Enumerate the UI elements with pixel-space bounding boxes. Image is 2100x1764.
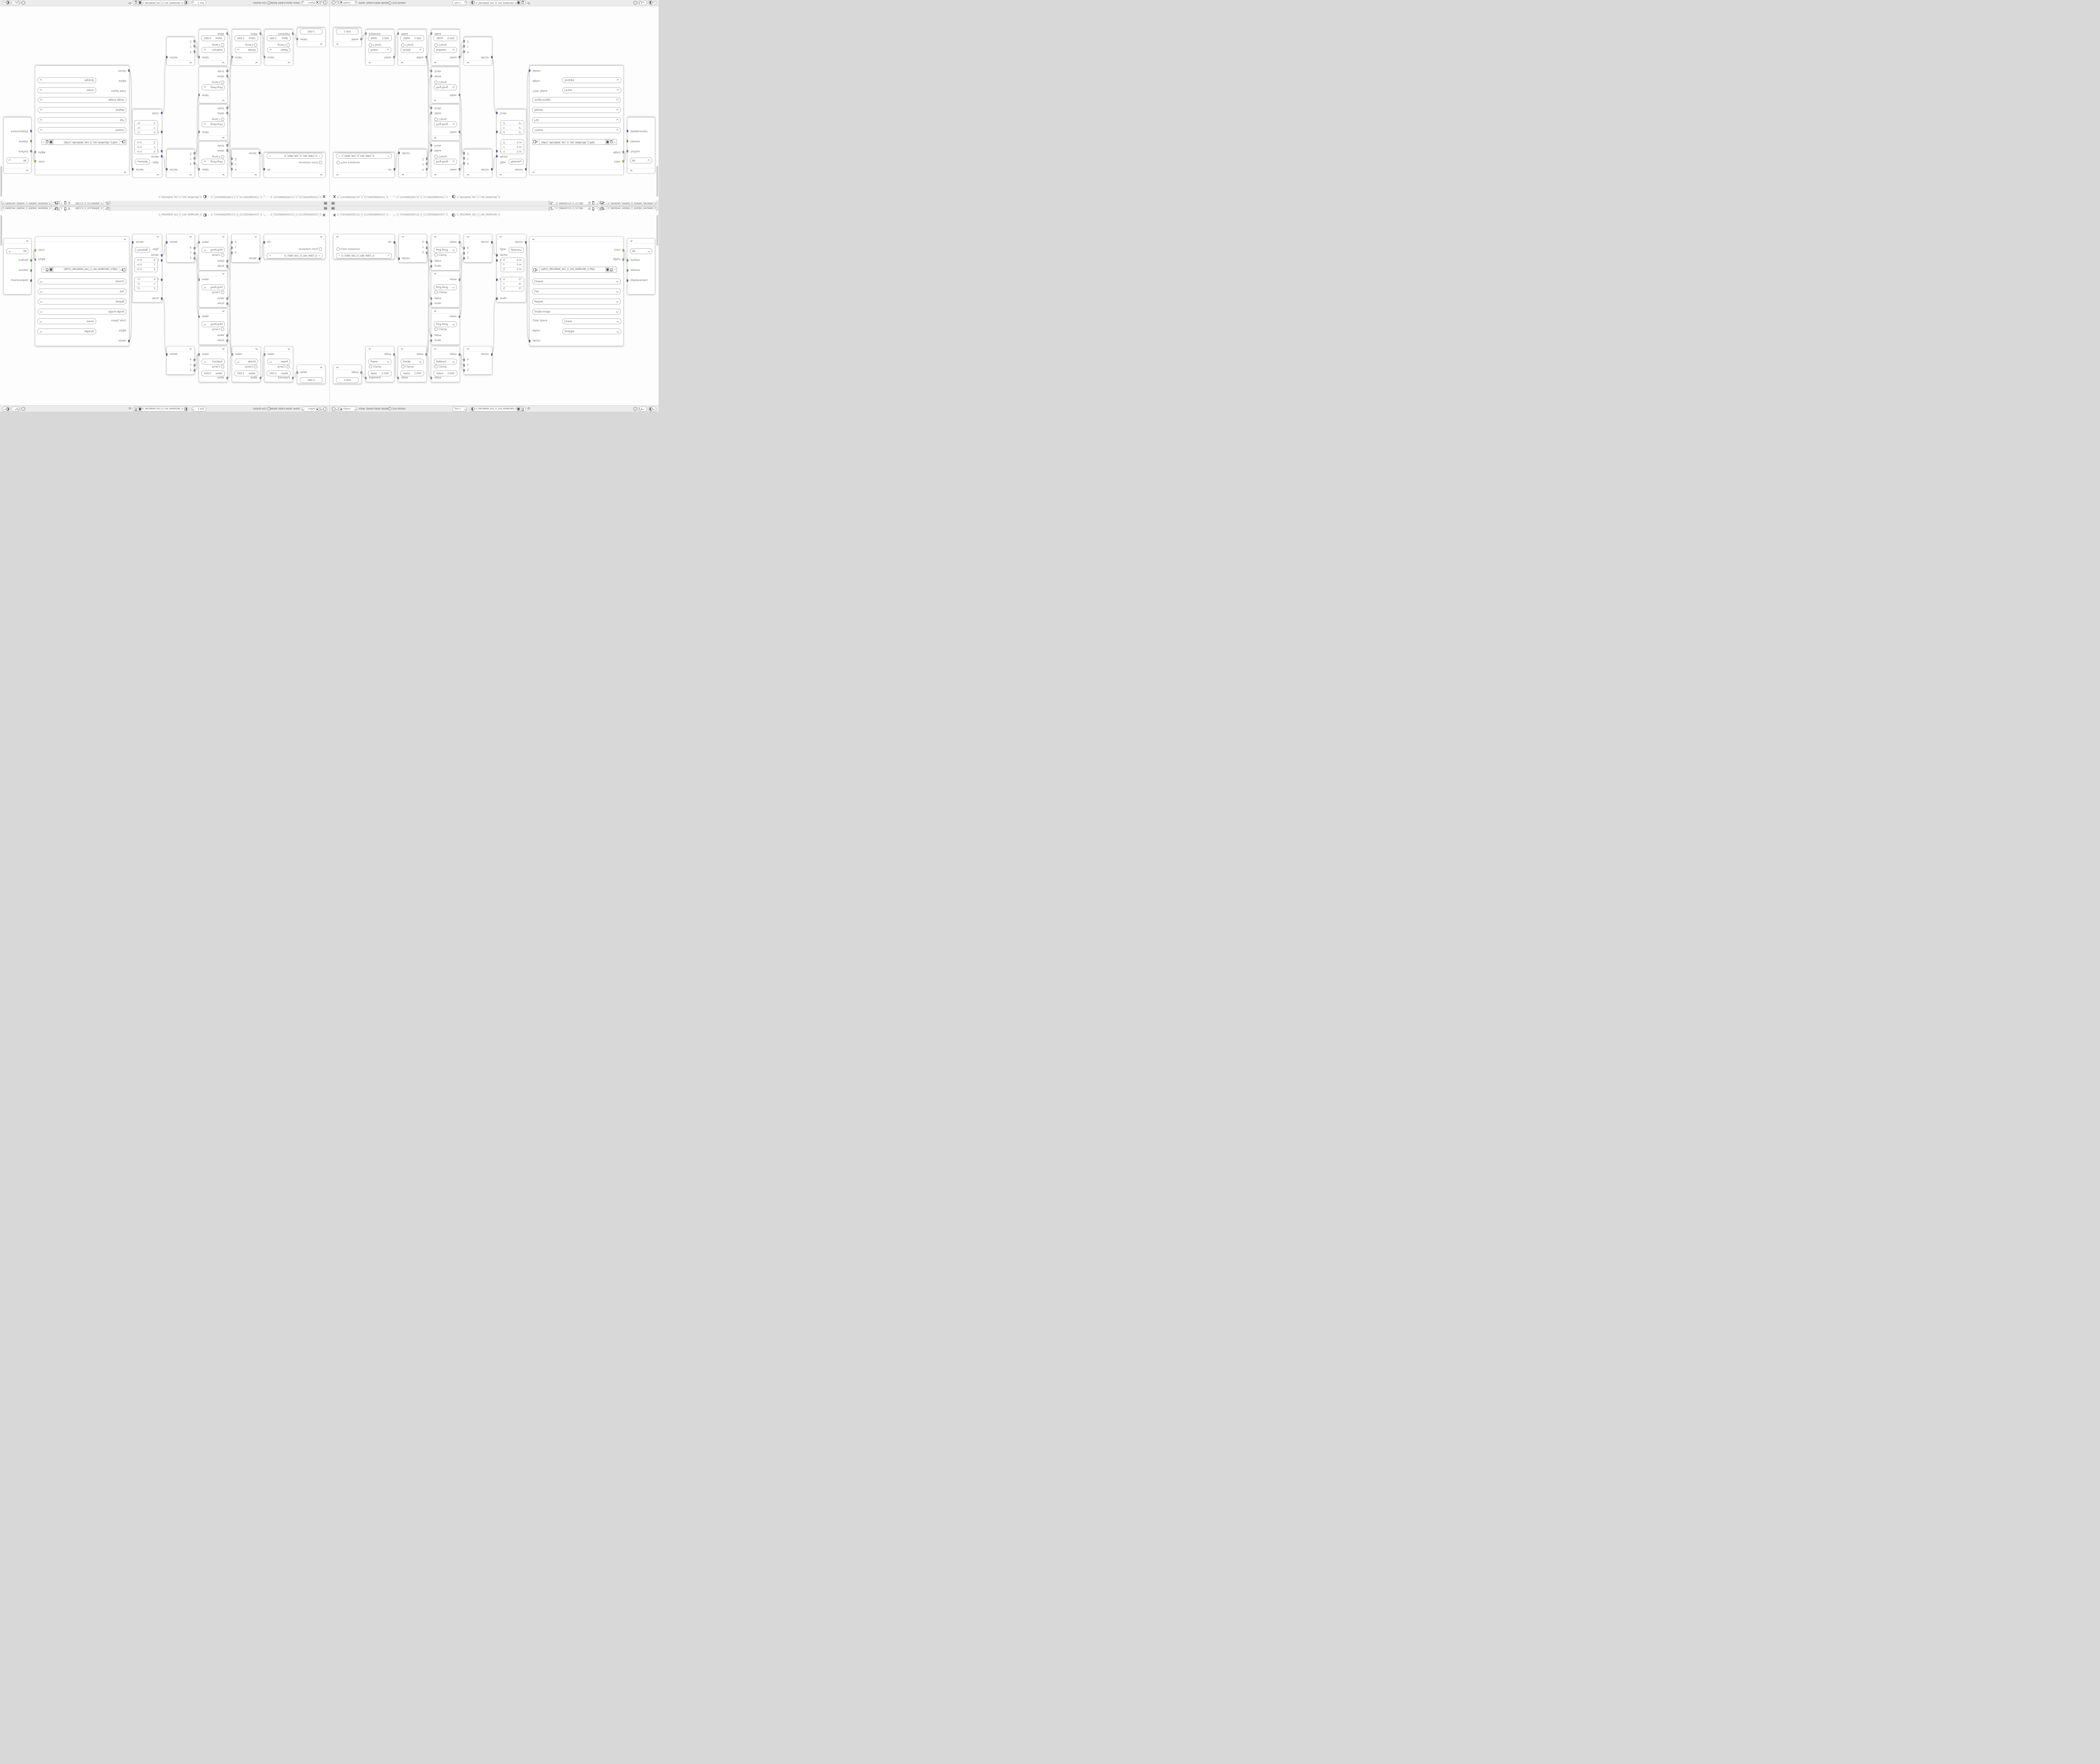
image-texture-node-header[interactable] <box>35 170 129 175</box>
node-editor-canvas[interactable]: O_TOHЅͶИƎƎЯƆƆЅ_O_ЅƆƆЯЯƎƎИͶЅHOT_O›O_TOHЅͶ… <box>0 211 329 406</box>
socket-math-ping-pong-2-out-value[interactable] <box>459 278 461 281</box>
close-icon[interactable]: ✕ <box>133 407 134 411</box>
socket-combine-xyz-1-in-x[interactable] <box>463 162 465 164</box>
material-output-all-dropdown[interactable]: All <box>6 248 29 254</box>
socket-math-power-out-value[interactable] <box>264 353 266 355</box>
image-texture-repeat-dropdown[interactable]: Repeat <box>38 299 126 304</box>
combine-xyz-2-node-header[interactable] <box>167 60 194 65</box>
math-ping-pong-1-node[interactable]: ValuePing-PongClampValueScale <box>199 234 228 270</box>
socket-mapping-in-rotation[interactable] <box>161 278 163 281</box>
image-texture-singleimage-dropdown[interactable]: Single Image <box>38 309 126 315</box>
math-divide-node-header[interactable] <box>398 346 426 352</box>
socket-mapping-in-vector[interactable] <box>161 155 163 157</box>
close-icon[interactable]: ✕ <box>613 267 617 272</box>
socket-math-ping-pong-2-in-value[interactable] <box>226 297 228 299</box>
proportional-editing-icon[interactable] <box>21 1 25 5</box>
math-subtract-value-slider[interactable]: Value0.000 <box>201 370 225 376</box>
math-subtract-subtract-dropdown[interactable]: Subtract <box>434 359 457 365</box>
socket-math-ping-pong-1-out-value[interactable] <box>198 241 200 243</box>
mapping-node-header[interactable] <box>497 172 526 177</box>
vector-field-y[interactable]: Y0 m <box>501 144 524 149</box>
material-output-node[interactable]: AllSurfaceVolumeDisplacement <box>627 117 655 173</box>
socket-uv-map-out-uv[interactable] <box>394 168 396 170</box>
socket-separate-xyz-out-y[interactable] <box>426 163 428 165</box>
image-name[interactable]: GИP.O_ЯROЯRIM_WU_O_UW_MIЯROЯR_O.PNG <box>540 139 605 144</box>
editor-type-selector[interactable] <box>331 407 339 412</box>
separate-xyz-node-header[interactable] <box>399 172 427 177</box>
socket-combine-xyz-2-in-x[interactable] <box>194 359 196 361</box>
view-layer-datablock[interactable]: O_ЯЯƎƎYAV_WƎƎIW_O_WIƎƎW_VAYƎƎЯЯ_O✕ <box>1 201 59 205</box>
close-icon[interactable]: ✕ <box>595 207 599 211</box>
copy-icon[interactable] <box>63 201 67 205</box>
close-icon[interactable]: ✕ <box>388 255 389 257</box>
math-subtract-node[interactable]: ValueSubtractClampValue0.000Value <box>199 29 228 66</box>
socket-separate-xyz-in-vector[interactable] <box>259 152 261 154</box>
material-output-node-header[interactable] <box>4 239 31 244</box>
pin-icon[interactable] <box>526 407 530 410</box>
socket-math-divide-out-value[interactable] <box>231 353 234 355</box>
mapping-vector-fields[interactable]: X0 mY0 mZ0 m <box>134 139 158 154</box>
value-1000-dropdown[interactable]: 1.000 <box>336 29 359 34</box>
view-layer-datablock-name[interactable]: O_ЯЯƎƎYAV_WƎƎIW_O_WIƎƎW_VAYƎƎЯЯ_O <box>607 207 657 211</box>
material-output-all-dropdown[interactable]: All <box>630 248 652 254</box>
socket-combine-xyz-2-in-y[interactable] <box>194 45 196 47</box>
uv-map-uvmap-field[interactable]: •O_ПAM_WU_O_UW_MAП_O✕ <box>267 153 323 159</box>
copy-icon[interactable] <box>521 0 525 5</box>
socket-image-texture-out-color[interactable] <box>34 249 37 251</box>
image-texture-node-header[interactable] <box>35 237 129 242</box>
socket-math-ping-pong-3-in-scale[interactable] <box>430 339 433 341</box>
image-texture-straight-dropdown[interactable]: Straight <box>562 77 621 83</box>
combine-xyz-1-node[interactable]: VectorXYZ <box>166 234 195 262</box>
math-power-node-header[interactable] <box>366 60 394 65</box>
copy-icon[interactable] <box>46 267 50 272</box>
material-output-node[interactable]: AllSurfaceVolumeDisplacement <box>3 117 31 173</box>
mapping-vector-fields[interactable]: X0 mY0 mZ0 m <box>501 257 524 272</box>
view-layer-datablock-name[interactable]: O_ЯЯƎƎYAV_WƎƎIW_O_WIƎƎW_VAYƎƎЯЯ_O <box>607 201 657 205</box>
socket-math-ping-pong-2-out-value[interactable] <box>459 131 461 133</box>
image-name[interactable]: GИP.O_ЯROЯRIM_WU_O_UW_MIЯROЯR_O.PNG <box>53 139 119 144</box>
material-name[interactable]: O_ЯROЯRIM_WU_O_UW_MIЯROЯR_O <box>142 1 183 4</box>
socket-math-ping-pong-2-out-value[interactable] <box>198 131 200 133</box>
math-ping-pong-1-clamp-checkbox[interactable]: Clamp <box>434 253 447 257</box>
socket-combine-xyz-2-in-y[interactable] <box>463 45 465 47</box>
menu-view[interactable]: View <box>359 407 365 410</box>
slot-selector[interactable]: Slot 1 <box>452 407 467 412</box>
socket-separate-xyz-in-vector[interactable] <box>398 257 400 260</box>
mapping-texture-dropdown[interactable]: Texture <box>135 247 150 253</box>
socket-material-output-in-volume[interactable] <box>30 140 32 142</box>
image-name[interactable]: GИP.O_ЯROЯRIM_WU_O_UW_MIЯROЯR_O.PNG <box>540 267 605 272</box>
breadcrumb-item[interactable]: O_TOHЅͶИƎƎЯƆƆЅ_O_ЅƆƆЯЯƎƎИͶЅHOT_O <box>337 195 388 198</box>
socket-material-output-in-displacement[interactable] <box>30 279 32 281</box>
image-texture-closest-dropdown[interactable]: Closest <box>38 278 126 284</box>
view-layer-datablock-name[interactable]: O_ЯЯƎƎYAV_WƎƎIW_O_WIƎƎW_VAYƎƎЯЯ_O <box>2 207 52 211</box>
math-ping-pong-1-clamp-checkbox[interactable]: Clamp <box>212 253 224 257</box>
math-ping-pong-1-node-header[interactable] <box>431 234 459 239</box>
combine-xyz-2-node[interactable]: VectorXYZ <box>166 37 195 66</box>
math-power-clamp-checkbox[interactable]: Clamp <box>369 365 381 368</box>
close-icon[interactable]: ✕ <box>269 155 271 157</box>
vector-field-z[interactable]: Z0° <box>135 121 157 125</box>
snap-controls[interactable] <box>638 0 647 5</box>
menu-view[interactable]: View <box>294 407 300 410</box>
math-ping-pong-1-node[interactable]: ValuePing-PongClampValueScale <box>431 234 460 270</box>
node-editor-canvas[interactable]: O_TOHЅͶИƎƎЯƆƆЅ_O_ЅƆƆЯЯƎƎИͶЅHOT_O›O_TOHЅͶ… <box>329 211 659 406</box>
vertical-scrollbar[interactable] <box>1 166 3 197</box>
snap-controls[interactable] <box>11 0 21 5</box>
socket-math-divide-out-value[interactable] <box>425 353 428 355</box>
material-output-node[interactable]: AllSurfaceVolumeDisplacement <box>627 238 655 294</box>
math-ping-pong-3-node[interactable]: ValuePing-PongClampValueScale <box>199 67 228 103</box>
math-power-base-slider[interactable]: Base2.000 <box>267 35 291 41</box>
math-divide-node[interactable]: ValueDivideClampValue1.000Value <box>398 29 427 66</box>
mapping-vector-fields[interactable]: X0°Y0°Z0° <box>134 120 158 135</box>
math-ping-pong-3-pingpong-dropdown[interactable]: Ping-Pong <box>434 321 457 327</box>
value-node-header[interactable] <box>333 42 361 47</box>
slot-selector[interactable]: Slot 1 <box>452 0 467 5</box>
uv-map-uvmap-field[interactable]: •O_ПAM_WU_O_UW_MAП_O✕ <box>336 153 392 159</box>
pin-icon[interactable] <box>587 201 591 205</box>
view-layer-datablock[interactable]: O_ЯЯƎƎYAV_WƎƎIW_O_WIƎƎW_VAYƎƎЯЯ_O✕ <box>600 201 657 205</box>
vector-field-x[interactable]: X0 m <box>501 258 524 262</box>
socket-math-ping-pong-1-in-scale[interactable] <box>430 144 433 146</box>
math-divide-divide-dropdown[interactable]: Divide <box>401 47 424 53</box>
math-power-power-dropdown[interactable]: Power <box>368 359 391 365</box>
vertical-scrollbar[interactable] <box>656 215 658 246</box>
socket-math-subtract-out-value[interactable] <box>198 56 200 58</box>
mapping-node[interactable]: VectorType:TextureVectorLocation:X0 mY0 … <box>132 109 162 178</box>
image-texture-node[interactable]: ColorAlphaGИP.O_ЯROЯRIM_WU_O_UW_MIЯROЯR_… <box>529 236 624 346</box>
math-ping-pong-2-clamp-checkbox[interactable]: Clamp <box>212 291 224 294</box>
socket-combine-xyz-1-in-x[interactable] <box>194 162 196 164</box>
math-subtract-clamp-checkbox[interactable]: Clamp <box>212 365 224 368</box>
math-ping-pong-3-node-header[interactable] <box>431 98 459 103</box>
menu-add[interactable]: Add <box>375 1 380 5</box>
overlay-controls[interactable] <box>648 407 656 412</box>
socket-math-divide-out-value[interactable] <box>425 56 428 58</box>
socket-mapping-out-vector[interactable] <box>525 241 527 243</box>
pin-icon[interactable] <box>587 207 591 211</box>
math-ping-pong-3-clamp-checkbox[interactable]: Clamp <box>212 81 224 84</box>
math-ping-pong-2-node-header[interactable] <box>431 135 459 140</box>
image-texture-image-datablock[interactable]: GИP.O_ЯROЯRIM_WU_O_UW_MIЯROЯR_O.PNG✓✕ <box>42 139 126 145</box>
socket-mapping-in-scale[interactable] <box>161 112 163 114</box>
copy-icon[interactable] <box>134 407 138 411</box>
vector-field-y[interactable]: Y0 m <box>135 144 157 149</box>
math-ping-pong-1-clamp-checkbox[interactable]: Clamp <box>212 155 224 158</box>
math-power-node-header[interactable] <box>366 346 394 352</box>
value-node-header[interactable] <box>297 365 325 370</box>
socket-math-ping-pong-1-in-value[interactable] <box>430 149 433 151</box>
material-output-node-header[interactable] <box>4 168 31 173</box>
fake-user-shield-icon[interactable]: ✓ <box>138 0 142 5</box>
combine-xyz-1-node[interactable]: VectorXYZ <box>166 149 195 178</box>
socket-material-output-in-surface[interactable] <box>30 259 32 261</box>
socket-combine-xyz-1-in-x[interactable] <box>463 247 465 249</box>
breadcrumb-item[interactable]: O_ЯROЯRIM_WU_O_UW_MIЯROЯR_O <box>457 195 500 198</box>
math-ping-pong-1-pingpong-dropdown[interactable]: Ping-Pong <box>202 159 225 165</box>
socket-separate-xyz-out-y[interactable] <box>231 163 233 165</box>
math-ping-pong-3-node-header[interactable] <box>431 309 459 314</box>
socket-combine-xyz-2-in-y[interactable] <box>463 364 465 366</box>
copy-icon[interactable] <box>521 407 525 411</box>
math-ping-pong-2-node[interactable]: ValuePing-PongClampValueScale <box>199 271 228 307</box>
socket-math-ping-pong-2-in-value[interactable] <box>430 112 433 114</box>
socket-material-output-in-volume[interactable] <box>627 269 629 271</box>
math-ping-pong-1-pingpong-dropdown[interactable]: Ping-Pong <box>434 159 457 165</box>
socket-combine-xyz-1-in-y[interactable] <box>463 157 465 159</box>
uv-map-node[interactable]: UVFrom Instancer•O_ПAM_WU_O_UW_MAП_O✕ <box>264 234 325 259</box>
math-power-power-dropdown[interactable]: Power <box>267 359 290 365</box>
image-texture-singleimage-dropdown[interactable]: Single Image <box>532 97 621 103</box>
math-subtract-subtract-dropdown[interactable]: Subtract <box>434 47 457 53</box>
socket-combine-xyz-2-out-vector[interactable] <box>166 353 168 355</box>
socket-image-texture-in-vector[interactable] <box>529 69 531 71</box>
socket-math-divide-in-value[interactable] <box>397 377 399 379</box>
image-texture-repeat-dropdown[interactable]: Repeat <box>38 107 126 113</box>
socket-separate-xyz-out-y[interactable] <box>426 247 428 249</box>
combine-xyz-2-node[interactable]: VectorXYZ <box>166 346 195 375</box>
math-ping-pong-1-node[interactable]: ValuePing-PongClampValueScale <box>431 141 460 178</box>
socket-combine-xyz-1-out-vector[interactable] <box>491 241 493 243</box>
math-divide-value-slider[interactable]: Value1.000 <box>234 370 258 376</box>
math-ping-pong-1-node-header[interactable] <box>431 172 459 177</box>
vector-field-z[interactable]: Z0 m <box>135 268 157 272</box>
socket-mapping-out-vector[interactable] <box>132 241 134 243</box>
socket-value-out-value[interactable] <box>297 371 299 373</box>
socket-math-ping-pong-1-in-value[interactable] <box>226 260 228 262</box>
socket-image-texture-out-alpha[interactable] <box>622 151 625 153</box>
socket-math-ping-pong-1-in-scale[interactable] <box>226 144 228 146</box>
image-texture-straight-dropdown[interactable]: Straight <box>37 77 96 83</box>
image-texture-singleimage-dropdown[interactable]: Single Image <box>38 97 126 103</box>
image-texture-closest-dropdown[interactable]: Closest <box>532 278 621 284</box>
socket-math-ping-pong-2-in-scale[interactable] <box>430 107 433 109</box>
material-datablock[interactable]: O_ЯROЯRIM_WU_O_UW_MIЯROЯR_O✓✕ <box>133 407 189 412</box>
fake-user-shield-icon[interactable]: ✓ <box>50 267 53 272</box>
math-ping-pong-3-node-header[interactable] <box>199 98 227 103</box>
material-name[interactable]: O_ЯROЯRIM_WU_O_UW_MIЯROЯR_O <box>142 408 183 410</box>
slot-selector[interactable]: Slot 1 <box>192 407 206 412</box>
math-divide-divide-dropdown[interactable]: Divide <box>235 47 258 53</box>
math-power-node[interactable]: ValuePowerClampBase2.000Exponent <box>365 346 394 382</box>
scene-datablock[interactable]: O_ƎƎИͶƎƆƆЅ_O_ЅƆƆƎИ...✕ <box>59 207 110 211</box>
vector-field-x[interactable]: X0° <box>501 130 524 134</box>
socket-value-out-value[interactable] <box>360 38 362 40</box>
socket-combine-xyz-2-in-x[interactable] <box>463 50 465 52</box>
vector-field-y[interactable]: Y0° <box>501 282 524 286</box>
math-ping-pong-3-node[interactable]: ValuePing-PongClampValueScale <box>431 308 460 345</box>
math-power-power-dropdown[interactable]: Power <box>267 47 290 53</box>
socket-math-subtract-out-value[interactable] <box>459 353 461 355</box>
breadcrumb-item[interactable]: O_ЯROЯRIM_WU_O_UW_MIЯROЯR_O <box>159 214 202 216</box>
value-node[interactable]: Value1.000 <box>297 365 325 384</box>
socket-image-texture-out-color[interactable] <box>622 160 625 162</box>
vector-field-z[interactable]: Z0 m <box>501 268 524 272</box>
math-subtract-node[interactable]: ValueSubtractClampValue0.000Value <box>199 346 228 382</box>
close-icon[interactable]: ✕ <box>525 0 526 5</box>
socket-math-power-in-exponent[interactable] <box>292 377 294 379</box>
socket-mapping-in-rotation[interactable] <box>161 131 163 133</box>
copy-icon[interactable] <box>1 201 2 205</box>
uv-map-node-header[interactable] <box>264 172 325 177</box>
socket-material-output-in-surface[interactable] <box>627 259 629 261</box>
math-ping-pong-3-node[interactable]: ValuePing-PongClampValueScale <box>431 67 460 103</box>
menu-add[interactable]: Add <box>375 407 380 410</box>
node-editor-canvas[interactable]: O_TOHЅͶИƎƎЯƆƆЅ_O_ЅƆƆЯЯƎƎИͶЅHOT_O›O_TOHЅͶ… <box>0 6 329 201</box>
view-layer-datablock[interactable]: O_ЯЯƎƎYAV_WƎƎIW_O_WIƎƎW_VAYƎƎЯЯ_O✕ <box>1 207 59 211</box>
vector-field-y[interactable]: Y0° <box>501 125 524 129</box>
pin-icon[interactable] <box>128 1 132 5</box>
snap-controls[interactable] <box>638 407 647 412</box>
socket-combine-xyz-1-in-z[interactable] <box>194 152 196 154</box>
socket-math-subtract-out-value[interactable] <box>459 56 461 58</box>
uv-map-from-instancer-checkbox[interactable]: From Instancer <box>336 161 360 164</box>
socket-math-ping-pong-2-in-value[interactable] <box>430 297 433 299</box>
copy-icon[interactable] <box>609 139 613 144</box>
combine-xyz-2-node-header[interactable] <box>464 60 492 65</box>
menu-icon[interactable] <box>324 202 327 205</box>
uv-map-uvmap-field[interactable]: •O_ПAM_WU_O_UW_MAП_O✕ <box>267 253 323 259</box>
math-ping-pong-2-clamp-checkbox[interactable]: Clamp <box>212 118 224 121</box>
math-subtract-value-slider[interactable]: Value0.000 <box>433 370 457 376</box>
math-divide-divide-dropdown[interactable]: Divide <box>401 359 424 365</box>
socket-combine-xyz-1-in-y[interactable] <box>194 157 196 159</box>
combine-xyz-2-node[interactable]: VectorXYZ <box>464 346 492 375</box>
uv-map-uvmap-field[interactable]: •O_ПAM_WU_O_UW_MAП_O✕ <box>336 253 392 259</box>
math-divide-value-slider[interactable]: Value1.000 <box>234 35 258 41</box>
image-name[interactable]: GИP.O_ЯROЯRIM_WU_O_UW_MIЯROЯR_O.PNG <box>53 267 119 272</box>
image-texture-closest-dropdown[interactable]: Closest <box>38 127 126 133</box>
material-datablock[interactable]: O_ЯROЯRIM_WU_O_UW_MIЯROЯR_O✓✕ <box>133 0 189 5</box>
image-texture-linear-dropdown[interactable]: Linear <box>37 318 96 324</box>
material-output-node-header[interactable] <box>627 168 655 173</box>
socket-combine-xyz-2-in-x[interactable] <box>194 50 196 52</box>
math-ping-pong-2-node-header[interactable] <box>199 135 227 140</box>
math-subtract-value-slider[interactable]: Value0.000 <box>433 35 457 41</box>
breadcrumb-item[interactable]: O_TOHЅͶИƎƎЯƆƆЅ_O_ЅƆƆЯЯƎƎИͶЅHOT_O <box>396 214 448 216</box>
socket-mapping-in-scale[interactable] <box>161 297 163 299</box>
socket-math-ping-pong-3-in-scale[interactable] <box>226 70 228 72</box>
math-power-power-dropdown[interactable]: Power <box>368 47 391 53</box>
uv-map-node[interactable]: UVFrom Instancer•O_ПAM_WU_O_UW_MAП_O✕ <box>333 234 395 259</box>
separate-xyz-node[interactable]: XYZVector <box>231 149 260 178</box>
socket-math-power-in-exponent[interactable] <box>365 377 367 379</box>
image-texture-flat-dropdown[interactable]: Flat <box>532 289 621 294</box>
socket-math-ping-pong-3-out-value[interactable] <box>198 315 200 318</box>
image-texture-repeat-dropdown[interactable]: Repeat <box>532 299 621 304</box>
socket-math-ping-pong-3-in-value[interactable] <box>430 334 433 336</box>
math-divide-node-header[interactable] <box>232 60 260 65</box>
math-ping-pong-1-clamp-checkbox[interactable]: Clamp <box>434 155 447 158</box>
socket-math-ping-pong-3-out-value[interactable] <box>198 94 200 96</box>
use-nodes-checkbox[interactable]: ✓Use Nodes <box>253 407 270 410</box>
editor-type-selector[interactable] <box>320 407 328 412</box>
fake-user-shield-icon[interactable]: ✓ <box>605 139 609 144</box>
menu-add[interactable]: Add <box>278 1 283 5</box>
math-ping-pong-2-pingpong-dropdown[interactable]: Ping-Pong <box>434 121 457 127</box>
use-nodes-checkbox[interactable]: ✓Use Nodes <box>388 1 406 5</box>
socket-math-subtract-in-value[interactable] <box>430 32 433 34</box>
fake-user-shield-icon[interactable]: ✓ <box>517 0 521 5</box>
menu-select[interactable]: Select <box>284 1 292 5</box>
socket-combine-xyz-1-in-y[interactable] <box>194 252 196 254</box>
image-texture-node[interactable]: ColorAlphaGИP.O_ЯROЯRIM_WU_O_UW_MIЯROЯR_… <box>529 66 624 175</box>
socket-combine-xyz-1-in-y[interactable] <box>463 252 465 254</box>
socket-math-ping-pong-1-out-value[interactable] <box>459 168 461 170</box>
socket-mapping-in-location[interactable] <box>161 150 163 152</box>
socket-separate-xyz-in-vector[interactable] <box>398 152 400 154</box>
vertical-scrollbar[interactable] <box>1 215 3 246</box>
math-subtract-clamp-checkbox[interactable]: Clamp <box>434 365 447 368</box>
math-power-clamp-checkbox[interactable]: Clamp <box>277 43 290 47</box>
math-ping-pong-1-node[interactable]: ValuePing-PongClampValueScale <box>199 141 228 178</box>
math-ping-pong-2-pingpong-dropdown[interactable]: Ping-Pong <box>434 284 457 290</box>
mapping-vector-fields[interactable]: X0 mY0 mZ0 m <box>501 139 524 154</box>
socket-uv-map-out-uv[interactable] <box>263 168 265 170</box>
slot-selector[interactable]: Slot 1 <box>192 0 206 5</box>
menu-icon[interactable] <box>331 202 335 205</box>
socket-math-subtract-in-value[interactable] <box>430 377 433 379</box>
math-ping-pong-3-node[interactable]: ValuePing-PongClampValueScale <box>199 308 228 345</box>
breadcrumb-item[interactable]: O_TOHЅͶИƎƎЯƆƆЅ_O_ЅƆƆЯЯƎƎИͶЅHOT_O <box>337 214 388 216</box>
scene-datablock-name[interactable]: O_ƎƎИͶƎƆƆЅ_O_ЅƆƆƎИ... <box>555 207 587 211</box>
math-subtract-node[interactable]: ValueSubtractClampValue0.000Value <box>431 29 460 66</box>
copy-icon[interactable] <box>591 207 595 211</box>
socket-material-output-in-displacement[interactable] <box>627 130 629 132</box>
fake-user-shield-icon[interactable]: ✓ <box>605 267 609 272</box>
socket-mapping-in-location[interactable] <box>496 150 498 152</box>
material-datablock[interactable]: O_ЯROЯRIM_WU_O_UW_MIЯROЯR_O✓✕ <box>470 0 526 5</box>
image-texture-repeat-dropdown[interactable]: Repeat <box>532 107 621 113</box>
vector-field-x[interactable]: X0 m <box>501 149 524 154</box>
math-ping-pong-2-clamp-checkbox[interactable]: Clamp <box>434 118 447 121</box>
vector-field-x[interactable]: X0 m <box>135 258 157 262</box>
mapping-texture-dropdown[interactable]: Texture <box>509 247 524 253</box>
scene-datablock[interactable]: O_ƎƎИͶƎƆƆЅ_O_ЅƆƆƎИ...✕ <box>548 201 599 205</box>
image-texture-linear-dropdown[interactable]: Linear <box>562 318 621 324</box>
copy-icon[interactable] <box>134 0 138 5</box>
socket-combine-xyz-2-in-z[interactable] <box>194 40 196 42</box>
mapping-node-header[interactable] <box>497 234 526 239</box>
socket-combine-xyz-2-in-x[interactable] <box>463 359 465 361</box>
socket-math-subtract-in-value[interactable] <box>226 32 228 34</box>
math-subtract-node[interactable]: ValueSubtractClampValue0.000Value <box>431 346 460 382</box>
socket-math-ping-pong-1-out-value[interactable] <box>459 241 461 243</box>
separate-xyz-node[interactable]: XYZVector <box>231 234 260 262</box>
uv-map-node-header[interactable] <box>333 172 394 177</box>
math-divide-node[interactable]: ValueDivideClampValue1.000Value <box>398 346 427 382</box>
mapping-vector-fields[interactable]: X0°Y0°Z0° <box>134 277 158 291</box>
copy-icon[interactable] <box>46 139 50 144</box>
material-name[interactable]: O_ЯROЯRIM_WU_O_UW_MIЯROЯR_O <box>475 408 517 410</box>
vector-field-z[interactable]: Z0° <box>135 287 157 291</box>
menu-node[interactable]: Node <box>270 407 277 410</box>
socket-math-power-in-exponent[interactable] <box>365 32 367 34</box>
image-texture-node[interactable]: ColorAlphaGИP.O_ЯROЯRIM_WU_O_UW_MIЯROЯR_… <box>35 66 129 175</box>
uv-map-node[interactable]: UVFrom Instancer•O_ПAM_WU_O_UW_MAП_O✕ <box>333 152 395 178</box>
copy-icon[interactable] <box>657 207 657 211</box>
vector-field-x[interactable]: X0° <box>135 130 157 134</box>
mode-selector[interactable]: Object <box>339 0 357 5</box>
menu-node[interactable]: Node <box>381 1 388 5</box>
math-ping-pong-3-clamp-checkbox[interactable]: Clamp <box>434 328 447 331</box>
combine-xyz-1-node[interactable]: VectorXYZ <box>464 149 492 178</box>
mode-selector[interactable]: Object <box>302 407 320 412</box>
material-output-all-dropdown[interactable]: All <box>6 157 29 163</box>
math-ping-pong-2-pingpong-dropdown[interactable]: Ping-Pong <box>202 121 225 127</box>
